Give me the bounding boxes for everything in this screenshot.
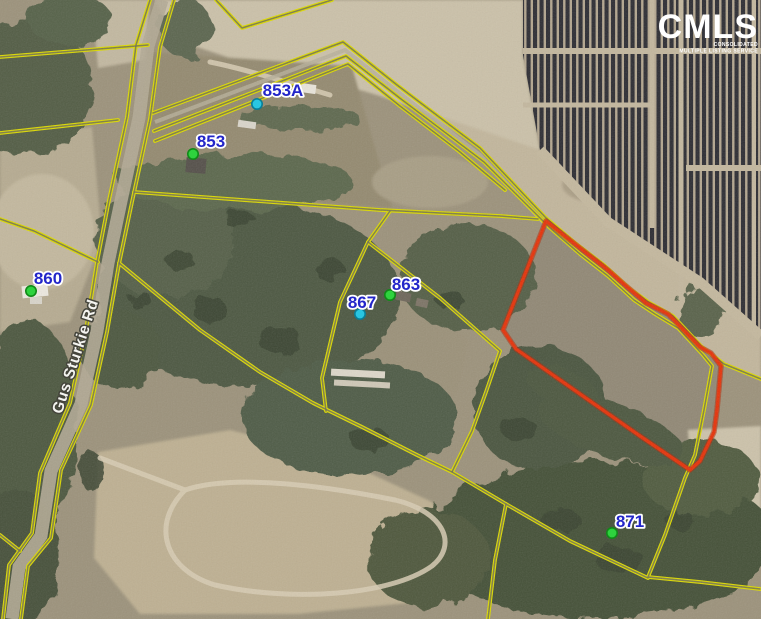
marker-dot-cyan[interactable]: [252, 99, 262, 109]
address-label-853A: 853A: [263, 81, 304, 100]
address-label-860: 860: [34, 269, 62, 288]
aerial-parcel-map-view[interactable]: 853A 853 860 863 867 871 Gus Sturkie Rd …: [0, 0, 761, 619]
address-label-871: 871: [616, 512, 644, 531]
cmls-logo-tagline-line2: MULTIPLE LISTING SERVICE: [679, 49, 758, 55]
photo-grain-overlay: [0, 0, 761, 619]
cmls-logo-wordmark: CMLS: [658, 8, 758, 46]
cmls-logo-tagline-line1: CONSOLIDATED: [714, 42, 758, 48]
address-label-863: 863: [392, 275, 420, 294]
address-label-853: 853: [197, 132, 225, 151]
map-canvas[interactable]: 853A 853 860 863 867 871 Gus Sturkie Rd …: [0, 0, 761, 619]
address-label-867: 867: [348, 293, 376, 312]
